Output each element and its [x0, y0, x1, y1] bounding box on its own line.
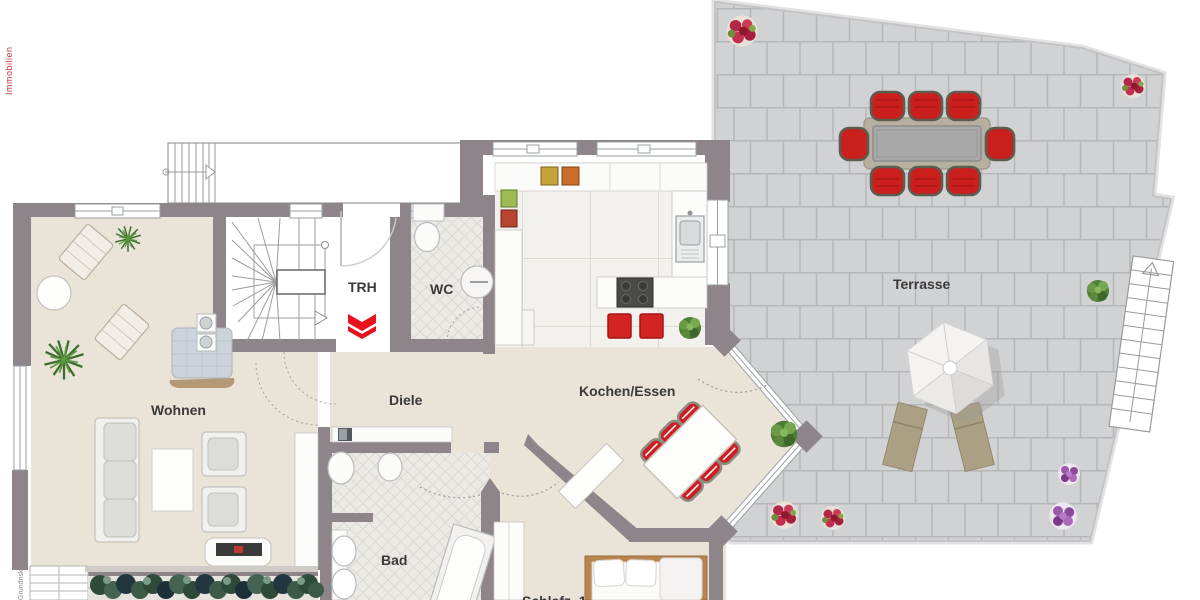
svg-text:Bad: Bad — [381, 552, 407, 568]
svg-text:Immobilien: Immobilien — [4, 46, 14, 95]
svg-text:Wohnen: Wohnen — [151, 402, 206, 418]
svg-text:Schlafz. 1: Schlafz. 1 — [522, 593, 587, 600]
svg-text:Grundrisk: Grundrisk — [18, 569, 25, 600]
svg-text:Terrasse: Terrasse — [893, 276, 951, 292]
svg-text:Diele: Diele — [389, 392, 423, 408]
svg-text:Kochen/Essen: Kochen/Essen — [579, 383, 675, 399]
svg-text:TRH: TRH — [348, 279, 377, 295]
svg-text:WC: WC — [430, 281, 453, 297]
